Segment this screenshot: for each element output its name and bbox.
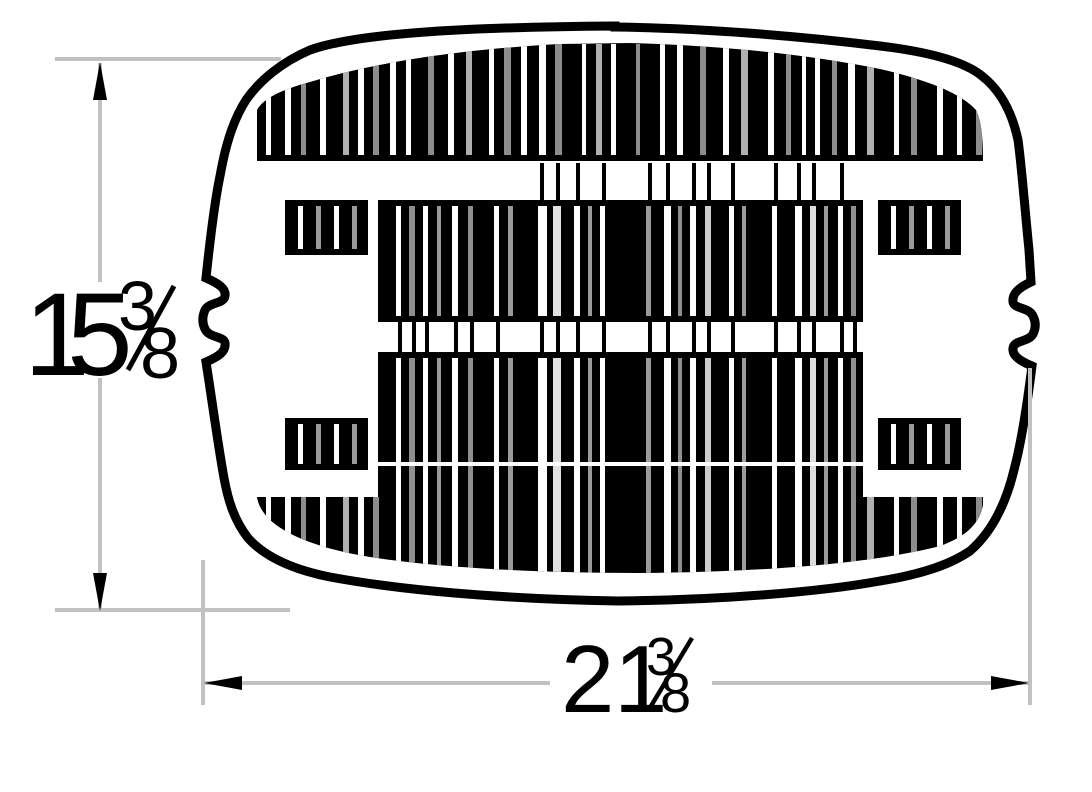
svg-text:8: 8 [140, 314, 180, 394]
svg-text:15: 15 [24, 269, 133, 401]
svg-text:8: 8 [660, 661, 691, 724]
